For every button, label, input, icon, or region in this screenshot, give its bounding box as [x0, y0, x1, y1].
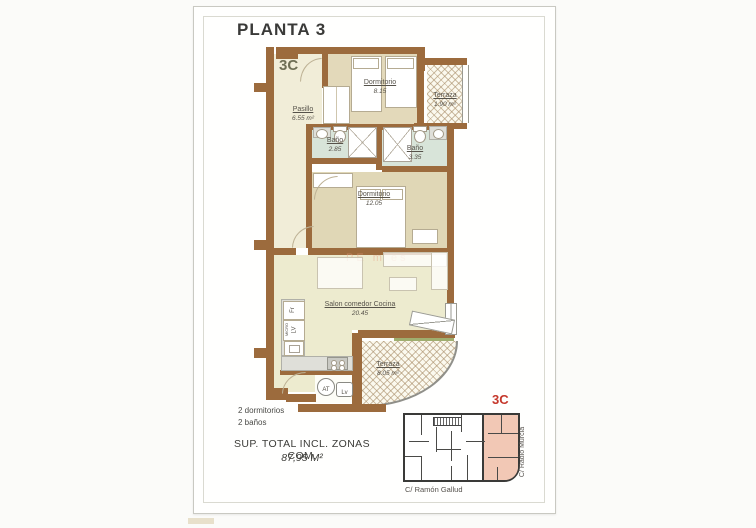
wall: [382, 166, 453, 172]
site-plan-partition: [501, 415, 502, 434]
scan-artifact: [188, 518, 214, 524]
site-plan-partition: [488, 457, 518, 458]
burner: [339, 365, 345, 371]
wall: [266, 47, 274, 250]
site-plan-unit-label: 3C: [492, 392, 509, 407]
room-label-dormitorio-2: Dormitorio 12.05: [344, 191, 404, 208]
room-label-terraza-2: Terraza 8.05 m²: [366, 361, 410, 378]
toilet-icon: [414, 130, 426, 143]
wall: [286, 394, 316, 402]
wall: [352, 333, 362, 404]
sofa: [431, 252, 448, 290]
wall: [266, 248, 296, 255]
wall: [298, 404, 386, 412]
wall: [322, 54, 328, 88]
site-plan-stair-hatch: [433, 417, 462, 426]
kitchen-sink: [284, 341, 304, 356]
pillow: [353, 58, 379, 69]
page-title: PLANTA 3: [237, 20, 326, 40]
wall: [417, 55, 424, 125]
room-label-terraza-1: Terraza 1.90 m²: [425, 92, 465, 109]
wall: [306, 158, 382, 164]
fridge-label: Fr: [290, 307, 296, 313]
site-plan-partition: [451, 431, 452, 461]
sink-icon: [433, 129, 444, 139]
site-plan-partition: [409, 441, 429, 442]
site-plan-partition: [461, 415, 462, 432]
water-heater: AT: [317, 378, 335, 396]
room-label-salon: Salon comedor Cocina 20.45: [312, 301, 408, 318]
total-area-value: 87,95 M²: [230, 452, 374, 464]
wall: [266, 356, 274, 392]
site-plan-partition: [497, 467, 498, 480]
wardrobe: [323, 86, 350, 124]
fridge: Fr: [283, 301, 305, 320]
pillow: [387, 58, 414, 69]
room-label-pasillo: Pasillo 6.55 m²: [280, 106, 326, 123]
wall: [254, 83, 268, 92]
microwave-label: MICRO: [284, 323, 289, 336]
dining-table: [317, 257, 363, 289]
wall: [447, 255, 454, 305]
site-plan-building: [403, 413, 520, 482]
room-label-bano-1: Baño 2.85: [318, 137, 352, 154]
site-plan-partition: [436, 449, 461, 450]
bathrooms-count: 2 baños: [238, 418, 266, 427]
room-label-dormitorio-1: Dormitorio 8.15: [348, 79, 412, 96]
site-plan-partition: [405, 456, 422, 457]
site-plan-highlighted-unit: [482, 415, 518, 480]
site-plan-partition: [467, 455, 468, 480]
site-plan-partition: [421, 456, 422, 480]
unit-label: 3C: [279, 57, 298, 74]
sink-basin: [289, 345, 300, 353]
bedrooms-count: 2 dormitorios: [238, 406, 284, 415]
dishwasher-microwave: MICRO LV: [283, 320, 305, 341]
coffee-table: [389, 277, 417, 291]
site-plan-partition: [421, 415, 422, 435]
dresser: [412, 229, 438, 244]
site-plan-partition: [451, 466, 452, 480]
burner: [331, 365, 337, 371]
shower: [348, 127, 377, 158]
street-label-right: C/ Radio Murcia: [519, 417, 529, 487]
street-label-bottom: C/ Ramón Gallud: [405, 485, 485, 494]
laundry-label: Lv: [341, 390, 347, 396]
laundry-machine: Lv: [336, 382, 353, 397]
site-plan-partition: [488, 433, 518, 434]
wall: [266, 250, 274, 356]
dishwasher-label: LV: [291, 327, 297, 334]
room-label-bano-2: Baño 3.35: [396, 145, 434, 162]
scanned-floor-plan-sheet: PLANTA 3: [0, 0, 756, 528]
site-plan-partition: [466, 441, 485, 442]
wall: [447, 124, 454, 255]
wall: [424, 58, 467, 65]
stove: [327, 357, 348, 370]
water-heater-label: AT: [322, 387, 329, 393]
